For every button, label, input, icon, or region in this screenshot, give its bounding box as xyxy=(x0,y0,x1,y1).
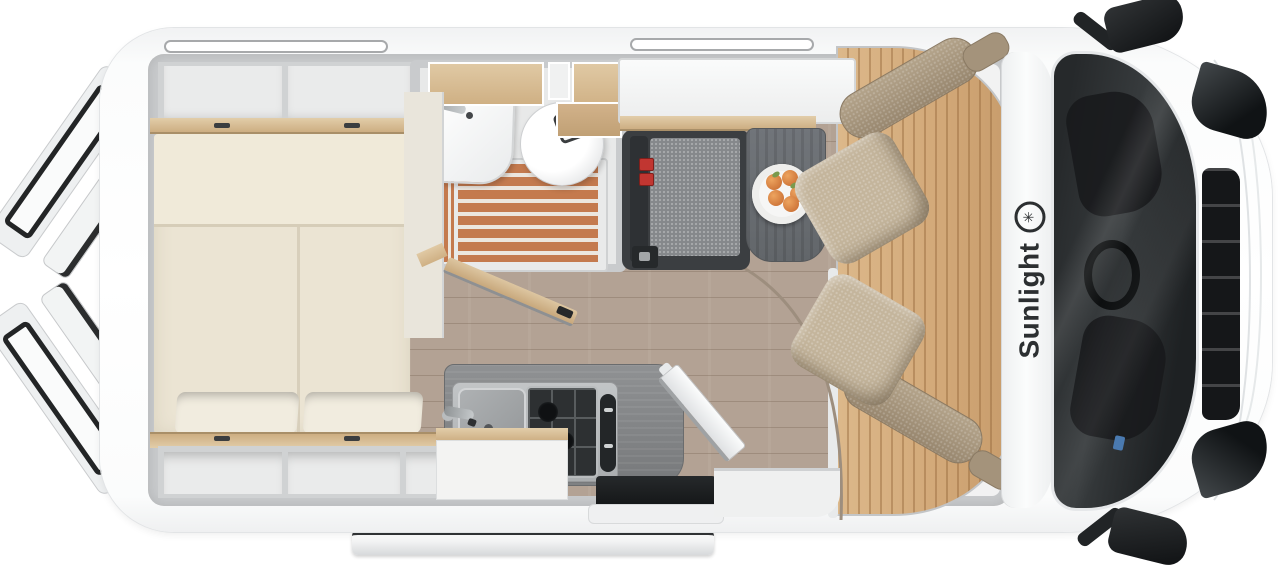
wing-mirror xyxy=(1102,0,1189,55)
wing-mirror xyxy=(1106,505,1193,569)
front-grille xyxy=(1202,168,1240,420)
bathroom-outer-wall-face xyxy=(404,92,444,338)
roof-window-strip xyxy=(164,40,388,53)
brand-logo: Sunlight ✳ xyxy=(1002,150,1056,410)
fruit xyxy=(768,190,784,206)
dinette-overhead-cabinet xyxy=(618,58,856,124)
kitchen-cabinet-front xyxy=(436,440,568,500)
bed-pillow xyxy=(175,392,300,434)
side-wall-segment xyxy=(714,468,840,517)
shelf-handle xyxy=(214,123,230,128)
shelf-handle xyxy=(344,123,360,128)
overhead-shelf-compartment xyxy=(288,66,410,124)
sink-drain xyxy=(466,112,473,119)
sliding-door-open-rail xyxy=(352,530,714,555)
entry-door-sill xyxy=(588,504,724,524)
overhead-shelf-compartment xyxy=(164,452,282,494)
shelf-wood-trim xyxy=(150,118,418,134)
overhead-shelf-compartment xyxy=(164,66,282,124)
hob-knob xyxy=(604,444,613,448)
bed-head-cushion xyxy=(154,134,410,227)
roof-window-strip xyxy=(630,38,814,51)
seatbelt-buckle xyxy=(639,158,654,171)
campervan-floorplan-top-view: Sunlight ✳ xyxy=(0,0,1280,561)
bed-pillow xyxy=(303,392,424,434)
shelf-handle xyxy=(344,436,360,441)
sun-star-icon: ✳ xyxy=(1014,202,1045,233)
overhead-shelf-compartment xyxy=(288,452,400,494)
seatbelt-buckle xyxy=(639,173,654,186)
windshield-glare xyxy=(1054,54,1196,508)
hob-knob xyxy=(604,408,613,412)
bathroom-wood-cubby xyxy=(556,102,622,138)
bathroom-shelf-slot xyxy=(548,62,570,100)
brand-logo-rotated: Sunlight ✳ xyxy=(1013,202,1045,359)
travel-bench-backrest xyxy=(630,136,648,262)
travel-bench-cushion xyxy=(650,138,740,256)
hob-burner xyxy=(538,402,558,422)
brand-logo-text: Sunlight xyxy=(1013,243,1045,359)
shelf-handle xyxy=(214,436,230,441)
bench-floor-bracket-pin xyxy=(639,252,650,261)
bathroom-wood-cubby xyxy=(428,62,544,106)
hob-control-panel xyxy=(600,394,616,472)
